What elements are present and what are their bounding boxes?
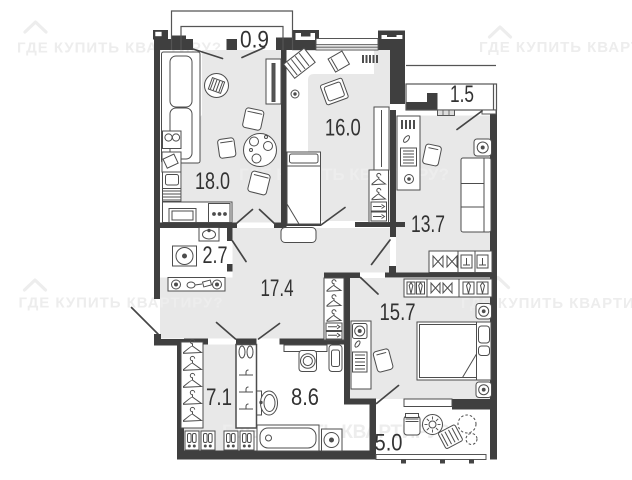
svg-text:8.6: 8.6 bbox=[291, 383, 319, 410]
svg-text:ГДЕ КУПИТЬ КВАРТИРУ?: ГДЕ КУПИТЬ КВАРТИРУ? bbox=[479, 39, 632, 56]
svg-text:2.7: 2.7 bbox=[203, 243, 228, 269]
svg-text:13.7: 13.7 bbox=[411, 211, 445, 237]
svg-text:1.5: 1.5 bbox=[450, 81, 474, 107]
svg-text:5.0: 5.0 bbox=[375, 429, 403, 456]
svg-text:16.0: 16.0 bbox=[325, 114, 361, 141]
svg-text:0.9: 0.9 bbox=[240, 26, 269, 53]
svg-text:18.0: 18.0 bbox=[195, 169, 230, 195]
svg-text:17.4: 17.4 bbox=[260, 275, 293, 302]
svg-text:ГДЕ КУПИТЬ КВАРТИРУ?: ГДЕ КУПИТЬ КВАРТИРУ? bbox=[19, 295, 223, 312]
svg-text:7.1: 7.1 bbox=[206, 384, 232, 411]
svg-text:15.7: 15.7 bbox=[380, 299, 416, 326]
